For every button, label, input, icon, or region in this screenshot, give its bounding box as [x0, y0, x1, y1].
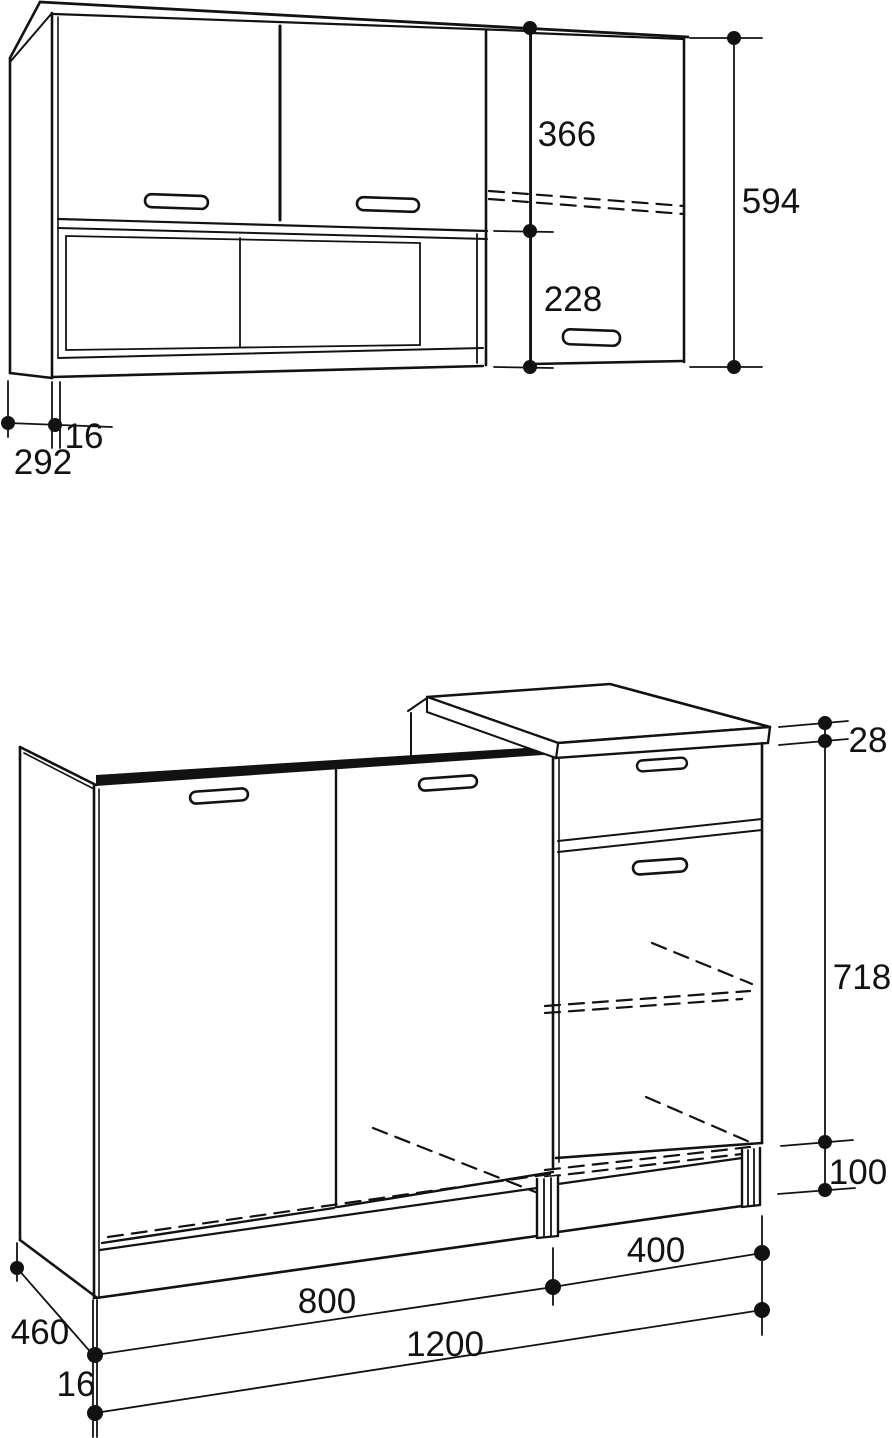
drawing-canvas: 366 228 594 16 292 28 718 100 400 800 12… — [0, 0, 892, 1438]
base-plinth-height-label: 100 — [829, 1153, 887, 1192]
base-unit-door-top — [558, 830, 762, 852]
base-plinth — [96, 1158, 742, 1298]
base-right-unit — [553, 743, 762, 1167]
base-left-door-bottom — [102, 1208, 334, 1243]
wall-hidden-shelf-line-1 — [489, 191, 684, 206]
wall-dimension-dots — [1, 21, 741, 432]
wall-total-height-label: 594 — [742, 182, 800, 221]
base-right-width-label: 400 — [627, 1231, 685, 1270]
base-side-panel — [20, 747, 96, 1297]
wall-side-panel — [10, 2, 52, 378]
base-carcass-height-label: 718 — [833, 958, 891, 997]
wall-right-door-handle — [357, 197, 419, 212]
wall-right-unit-handle — [563, 329, 620, 346]
wall-bottom-edge — [52, 366, 483, 377]
base-countertop-thickness-label: 28 — [849, 721, 888, 760]
base-left-door-handle — [190, 788, 249, 804]
base-drawer-handle — [637, 757, 688, 771]
base-depth-label: 460 — [11, 1313, 69, 1352]
base-left-width-label: 800 — [298, 1282, 356, 1321]
cabinet-dimension-drawing: 366 228 594 16 292 28 718 100 400 800 12… — [0, 0, 892, 1438]
base-unit-bottom — [556, 1143, 762, 1158]
wall-cabinet-drawing — [1, 2, 762, 448]
base-right-door-handle — [419, 775, 478, 791]
wall-left-door-handle — [145, 194, 208, 209]
wall-depth-label: 292 — [14, 443, 72, 482]
wall-top-edge — [40, 2, 688, 37]
wall-shelf-height-label: 228 — [544, 280, 602, 319]
wall-hidden-shelf-line-2 — [489, 199, 684, 214]
base-panel-thickness-label: 16 — [57, 1365, 96, 1404]
wall-dimension-lines — [8, 28, 762, 448]
base-dimension-dots — [10, 716, 832, 1421]
wall-door-height-label: 366 — [538, 115, 596, 154]
base-countertop — [408, 684, 770, 758]
base-drawer-bottom — [558, 819, 762, 841]
wall-doors — [58, 26, 487, 239]
base-unit-door-handle — [633, 858, 688, 875]
base-top-strip — [96, 746, 557, 786]
wall-open-shelf — [66, 234, 477, 363]
base-total-width-label: 1200 — [406, 1325, 484, 1364]
